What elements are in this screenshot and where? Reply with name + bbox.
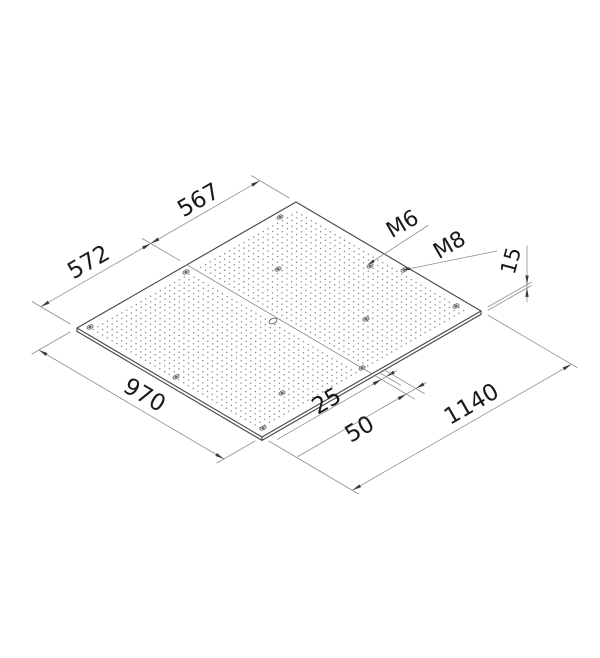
grid-hole-dot xyxy=(140,329,142,331)
grid-hole-dot xyxy=(272,225,274,227)
grid-hole-dot xyxy=(269,332,271,334)
grid-hole-dot xyxy=(449,318,451,320)
grid-hole-dot xyxy=(140,334,142,336)
grid-hole-dot xyxy=(377,287,379,289)
grid-hole-dot xyxy=(145,332,147,334)
grid-hole-dot xyxy=(363,256,365,258)
grid-hole-dot xyxy=(295,323,297,325)
grid-hole-dot xyxy=(207,357,209,359)
grid-hole-dot xyxy=(274,369,276,371)
grid-hole-dot xyxy=(283,369,285,371)
grid-hole-dot xyxy=(329,320,331,322)
grid-hole-dot xyxy=(305,250,307,252)
grid-hole-dot xyxy=(248,261,250,263)
grid-hole-dot xyxy=(312,346,314,348)
grid-hole-dot xyxy=(259,410,261,412)
grid-hole-dot xyxy=(278,405,280,407)
grid-hole-dot xyxy=(322,363,324,365)
grid-hole-dot xyxy=(386,354,388,356)
grid-hole-dot xyxy=(317,360,319,362)
grid-hole-dot xyxy=(396,321,398,323)
grid-hole-dot xyxy=(396,276,398,278)
grid-hole-dot xyxy=(277,261,279,263)
grid-hole-dot xyxy=(183,354,185,356)
grid-hole-dot xyxy=(449,307,451,309)
grid-hole-dot xyxy=(265,341,267,343)
grid-hole-dot xyxy=(341,369,343,371)
grid-hole-dot xyxy=(267,256,269,258)
grid-hole-dot xyxy=(315,278,317,280)
grid-hole-dot xyxy=(243,264,245,266)
grid-hole-dot xyxy=(344,284,346,286)
grid-hole-dot xyxy=(339,315,341,317)
grid-hole-dot xyxy=(164,354,166,356)
grid-hole-dot xyxy=(135,321,137,323)
dimension-arrow xyxy=(39,350,48,356)
grid-hole-dot xyxy=(229,284,231,286)
grid-hole-dot xyxy=(169,374,171,376)
grid-hole-dot xyxy=(420,290,422,292)
grid-hole-dot xyxy=(140,323,142,325)
grid-hole-dot xyxy=(303,374,305,376)
grid-hole-dot xyxy=(250,316,252,318)
grid-hole-dot xyxy=(334,323,336,325)
grid-hole-dot xyxy=(240,354,242,356)
grid-hole-dot xyxy=(269,382,271,384)
grid-hole-dot xyxy=(298,405,300,407)
grid-hole-dot xyxy=(444,299,446,301)
grid-hole-dot xyxy=(338,337,340,339)
grid-hole-dot xyxy=(358,304,360,306)
grid-hole-dot xyxy=(243,286,245,288)
grid-hole-dot xyxy=(372,362,374,364)
grid-hole-dot xyxy=(259,394,261,396)
grid-hole-dot xyxy=(386,337,388,339)
grid-hole-dot xyxy=(265,335,267,337)
grid-hole-dot xyxy=(250,416,252,418)
grid-hole-dot xyxy=(415,310,417,312)
grid-hole-dot xyxy=(135,348,137,350)
grid-hole-dot xyxy=(236,341,238,343)
grid-hole-dot xyxy=(250,388,252,390)
grid-hole-dot xyxy=(262,270,264,272)
grid-hole-dot xyxy=(301,220,303,222)
grid-hole-dot xyxy=(343,306,345,308)
grid-hole-dot xyxy=(197,379,199,381)
grid-hole-dot xyxy=(305,256,307,258)
grid-hole-dot xyxy=(264,391,266,393)
grid-hole-dot xyxy=(262,264,264,266)
grid-hole-dot xyxy=(300,292,302,294)
grid-hole-dot xyxy=(315,334,317,336)
grid-hole-dot xyxy=(315,262,317,264)
grid-hole-dot xyxy=(372,340,374,342)
grid-hole-dot xyxy=(174,321,176,323)
grid-hole-dot xyxy=(258,250,260,252)
grid-hole-dot xyxy=(336,372,338,374)
grid-hole-dot xyxy=(243,275,245,277)
grid-hole-dot xyxy=(324,340,326,342)
grid-hole-dot xyxy=(173,360,175,362)
grid-hole-dot xyxy=(319,320,321,322)
grid-hole-dot xyxy=(279,388,281,390)
grid-hole-dot xyxy=(221,393,223,395)
grid-hole-dot xyxy=(339,304,341,306)
grid-hole-dot xyxy=(310,264,312,266)
grid-hole-dot xyxy=(339,292,341,294)
grid-hole-dot xyxy=(283,396,285,398)
grid-hole-dot xyxy=(301,276,303,278)
grid-hole-dot xyxy=(212,382,214,384)
grid-hole-dot xyxy=(286,256,288,258)
grid-hole-dot xyxy=(274,324,276,326)
grid-hole-dot xyxy=(391,312,393,314)
grid-hole-dot xyxy=(411,284,413,286)
grid-hole-dot xyxy=(282,253,284,255)
grid-hole-dot xyxy=(269,394,271,396)
grid-hole-dot xyxy=(140,312,142,314)
grid-hole-dot xyxy=(362,345,364,347)
grid-hole-dot xyxy=(169,351,171,353)
dimension-arrow xyxy=(151,238,160,244)
grid-hole-dot xyxy=(329,265,331,267)
grid-hole-dot xyxy=(207,396,209,398)
grid-hole-dot xyxy=(279,383,281,385)
grid-hole-dot xyxy=(267,278,269,280)
grid-hole-dot xyxy=(203,282,205,284)
grid-hole-dot xyxy=(310,242,312,244)
grid-hole-dot xyxy=(310,220,312,222)
grid-hole-dot xyxy=(343,351,345,353)
grid-hole-dot xyxy=(260,321,262,323)
grid-hole-dot xyxy=(312,352,314,354)
grid-hole-dot xyxy=(324,312,326,314)
grid-hole-dot xyxy=(245,335,247,337)
grid-hole-dot xyxy=(159,323,161,325)
grid-hole-dot xyxy=(310,237,312,239)
grid-hole-dot xyxy=(358,337,360,339)
grid-hole-dot xyxy=(288,394,290,396)
grid-hole-dot xyxy=(288,344,290,346)
grid-hole-dot xyxy=(305,289,307,291)
grid-hole-dot xyxy=(382,279,384,281)
grid-hole-dot xyxy=(367,337,369,339)
grid-hole-dot xyxy=(341,374,343,376)
grid-hole-dot xyxy=(320,287,322,289)
grid-hole-dot xyxy=(221,332,223,334)
grid-hole-dot xyxy=(296,267,298,269)
grid-hole-dot xyxy=(207,329,209,331)
grid-hole-dot xyxy=(241,332,243,334)
grid-hole-dot xyxy=(272,292,274,294)
grid-hole-dot xyxy=(372,290,374,292)
grid-hole-dot xyxy=(306,223,308,225)
grid-hole-dot xyxy=(368,254,370,256)
grid-hole-dot xyxy=(305,284,307,286)
grid-hole-dot xyxy=(288,371,290,373)
grid-hole-dot xyxy=(367,287,369,289)
grid-hole-dot xyxy=(224,264,226,266)
grid-hole-dot xyxy=(284,363,286,365)
grid-hole-dot xyxy=(391,290,393,292)
grid-hole-dot xyxy=(353,295,355,297)
grid-hole-dot xyxy=(353,357,355,359)
extension-line xyxy=(269,441,359,494)
grid-hole-dot xyxy=(116,337,118,339)
grid-hole-dot xyxy=(226,313,228,315)
grid-hole-dot xyxy=(188,363,190,365)
grid-hole-dot xyxy=(288,360,290,362)
grid-hole-dot xyxy=(343,323,345,325)
grid-hole-dot xyxy=(193,365,195,367)
grid-hole-dot xyxy=(305,301,307,303)
grid-hole-dot xyxy=(405,326,407,328)
grid-hole-dot xyxy=(377,320,379,322)
grid-hole-dot xyxy=(322,369,324,371)
grid-hole-dot xyxy=(203,287,205,289)
grid-hole-dot xyxy=(353,323,355,325)
grid-hole-dot xyxy=(339,270,341,272)
grid-hole-dot xyxy=(291,248,293,250)
grid-hole-dot xyxy=(377,304,379,306)
grid-hole-dot xyxy=(243,270,245,272)
grid-hole-dot xyxy=(439,312,441,314)
dimension-arrow xyxy=(251,181,260,187)
grid-hole-dot xyxy=(198,318,200,320)
dimension-arrow xyxy=(215,453,224,459)
grid-hole-dot xyxy=(267,273,269,275)
grid-hole-dot xyxy=(296,239,298,241)
grid-hole-dot xyxy=(315,273,317,275)
grid-hole-dot xyxy=(303,369,305,371)
grid-hole-dot xyxy=(386,348,388,350)
grid-hole-dot xyxy=(353,340,355,342)
grid-hole-dot xyxy=(216,385,218,387)
grid-hole-dot xyxy=(334,329,336,331)
grid-hole-dot xyxy=(250,327,252,329)
grid-hole-dot xyxy=(169,284,171,286)
grid-hole-dot xyxy=(282,248,284,250)
grid-hole-dot xyxy=(396,315,398,317)
grid-hole-dot xyxy=(283,408,285,410)
grid-hole-dot xyxy=(274,408,276,410)
grid-hole-dot xyxy=(391,295,393,297)
grid-hole-dot xyxy=(334,312,336,314)
grid-hole-dot xyxy=(135,315,137,317)
extension-line xyxy=(251,176,289,198)
grid-hole-dot xyxy=(136,309,138,311)
grid-hole-dot xyxy=(262,242,264,244)
grid-hole-dot xyxy=(281,314,283,316)
grid-hole-dot xyxy=(300,315,302,317)
grid-hole-dot xyxy=(296,211,298,213)
grid-hole-dot xyxy=(329,343,331,345)
grid-hole-dot xyxy=(282,236,284,238)
grid-hole-dot xyxy=(174,304,176,306)
grid-hole-dot xyxy=(183,376,185,378)
grid-hole-dot xyxy=(324,284,326,286)
grid-hole-dot xyxy=(293,380,295,382)
grid-hole-dot xyxy=(298,371,300,373)
grid-hole-dot xyxy=(265,318,267,320)
grid-hole-dot xyxy=(264,374,266,376)
grid-hole-dot xyxy=(291,231,293,233)
dimension-label-970: 970 xyxy=(119,373,170,417)
grid-hole-dot xyxy=(221,338,223,340)
grid-hole-dot xyxy=(305,273,307,275)
grid-hole-dot xyxy=(202,388,204,390)
grid-hole-dot xyxy=(458,313,460,315)
grid-hole-dot xyxy=(363,295,365,297)
grid-hole-dot xyxy=(210,267,212,269)
grid-hole-dot xyxy=(174,354,176,356)
grid-hole-dot xyxy=(320,292,322,294)
grid-hole-dot xyxy=(343,334,345,336)
grid-hole-dot xyxy=(362,340,364,342)
grid-hole-dot xyxy=(405,343,407,345)
grid-hole-dot xyxy=(207,285,209,287)
grid-hole-dot xyxy=(229,250,231,252)
grid-hole-dot xyxy=(145,304,147,306)
grid-hole-dot xyxy=(136,304,138,306)
grid-hole-dot xyxy=(305,262,307,264)
grid-hole-dot xyxy=(116,343,118,345)
grid-hole-dot xyxy=(315,301,317,303)
grid-hole-dot xyxy=(344,273,346,275)
grid-hole-dot xyxy=(178,363,180,365)
grid-hole-dot xyxy=(126,343,128,345)
grid-hole-dot xyxy=(221,377,223,379)
grid-hole-dot xyxy=(272,275,274,277)
grid-hole-dot xyxy=(410,318,412,320)
grid-hole-dot xyxy=(274,374,276,376)
grid-hole-dot xyxy=(221,354,223,356)
grid-hole-dot xyxy=(327,360,329,362)
grid-hole-dot xyxy=(420,301,422,303)
grid-hole-dot xyxy=(272,309,274,311)
grid-hole-dot xyxy=(212,299,214,301)
grid-hole-dot xyxy=(164,315,166,317)
extension-line xyxy=(385,370,425,393)
grid-hole-dot xyxy=(434,315,436,317)
grid-hole-dot xyxy=(298,349,300,351)
grid-hole-dot xyxy=(282,242,284,244)
grid-hole-dot xyxy=(229,256,231,258)
grid-hole-dot xyxy=(262,236,264,238)
grid-hole-dot xyxy=(135,337,137,339)
grid-hole-dot xyxy=(286,278,288,280)
grid-hole-dot xyxy=(236,335,238,337)
grid-hole-dot xyxy=(203,299,205,301)
grid-hole-dot xyxy=(367,343,369,345)
grid-hole-dot xyxy=(241,349,243,351)
grid-hole-dot xyxy=(212,321,214,323)
grid-hole-dot xyxy=(401,329,403,331)
grid-hole-dot xyxy=(310,248,312,250)
grid-hole-dot xyxy=(269,405,271,407)
grid-hole-dot xyxy=(415,332,417,334)
grid-hole-dot xyxy=(253,242,255,244)
grid-hole-dot xyxy=(291,292,293,294)
grid-hole-dot xyxy=(150,346,152,348)
grid-hole-dot xyxy=(255,341,257,343)
grid-hole-dot xyxy=(396,293,398,295)
grid-hole-dot xyxy=(235,391,237,393)
grid-hole-dot xyxy=(396,304,398,306)
grid-hole-dot xyxy=(315,251,317,253)
grid-hole-dot xyxy=(322,380,324,382)
grid-hole-dot xyxy=(179,301,181,303)
grid-hole-dot xyxy=(288,366,290,368)
grid-hole-dot xyxy=(145,298,147,300)
grid-hole-dot xyxy=(212,315,214,317)
grid-hole-dot xyxy=(358,248,360,250)
grid-hole-dot xyxy=(212,293,214,295)
grid-hole-dot xyxy=(372,357,374,359)
grid-hole-dot xyxy=(267,267,269,269)
grid-hole-dot xyxy=(140,318,142,320)
grid-hole-dot xyxy=(202,354,204,356)
grid-hole-dot xyxy=(322,374,324,376)
grid-hole-dot xyxy=(288,405,290,407)
grid-hole-dot xyxy=(107,337,109,339)
grid-hole-dot xyxy=(255,346,257,348)
grid-hole-dot xyxy=(348,315,350,317)
grid-hole-dot xyxy=(358,265,360,267)
grid-hole-dot xyxy=(274,391,276,393)
grid-hole-dot xyxy=(343,345,345,347)
grid-hole-dot xyxy=(331,374,333,376)
grid-hole-dot xyxy=(274,396,276,398)
grid-hole-dot xyxy=(274,346,276,348)
grid-hole-dot xyxy=(272,242,274,244)
grid-hole-dot xyxy=(324,334,326,336)
grid-hole-dot xyxy=(420,284,422,286)
grid-hole-dot xyxy=(391,334,393,336)
grid-hole-dot xyxy=(150,351,152,353)
grid-hole-dot xyxy=(269,355,271,357)
grid-hole-dot xyxy=(234,275,236,277)
grid-hole-dot xyxy=(307,394,309,396)
grid-hole-dot xyxy=(238,284,240,286)
grid-hole-dot xyxy=(396,309,398,311)
extension-line xyxy=(217,441,255,463)
grid-hole-dot xyxy=(315,317,317,319)
grid-hole-dot xyxy=(135,354,137,356)
grid-hole-dot xyxy=(405,337,407,339)
grid-hole-dot xyxy=(264,408,266,410)
grid-hole-dot xyxy=(353,273,355,275)
grid-hole-dot xyxy=(169,312,171,314)
grid-hole-dot xyxy=(315,223,317,225)
grid-hole-dot xyxy=(396,343,398,345)
grid-hole-dot xyxy=(444,310,446,312)
grid-hole-dot xyxy=(173,371,175,373)
dimension-label-1140: 1140 xyxy=(440,379,504,431)
grid-hole-dot xyxy=(377,332,379,334)
grid-hole-dot xyxy=(107,320,109,322)
grid-hole-dot xyxy=(300,320,302,322)
grid-hole-dot xyxy=(169,329,171,331)
grid-hole-dot xyxy=(202,332,204,334)
grid-hole-dot xyxy=(391,301,393,303)
dimension-arrow xyxy=(416,383,425,389)
grid-hole-dot xyxy=(155,309,157,311)
grid-hole-dot xyxy=(159,312,161,314)
grid-hole-dot xyxy=(286,284,288,286)
grid-hole-dot xyxy=(305,312,307,314)
grid-hole-dot xyxy=(367,304,369,306)
